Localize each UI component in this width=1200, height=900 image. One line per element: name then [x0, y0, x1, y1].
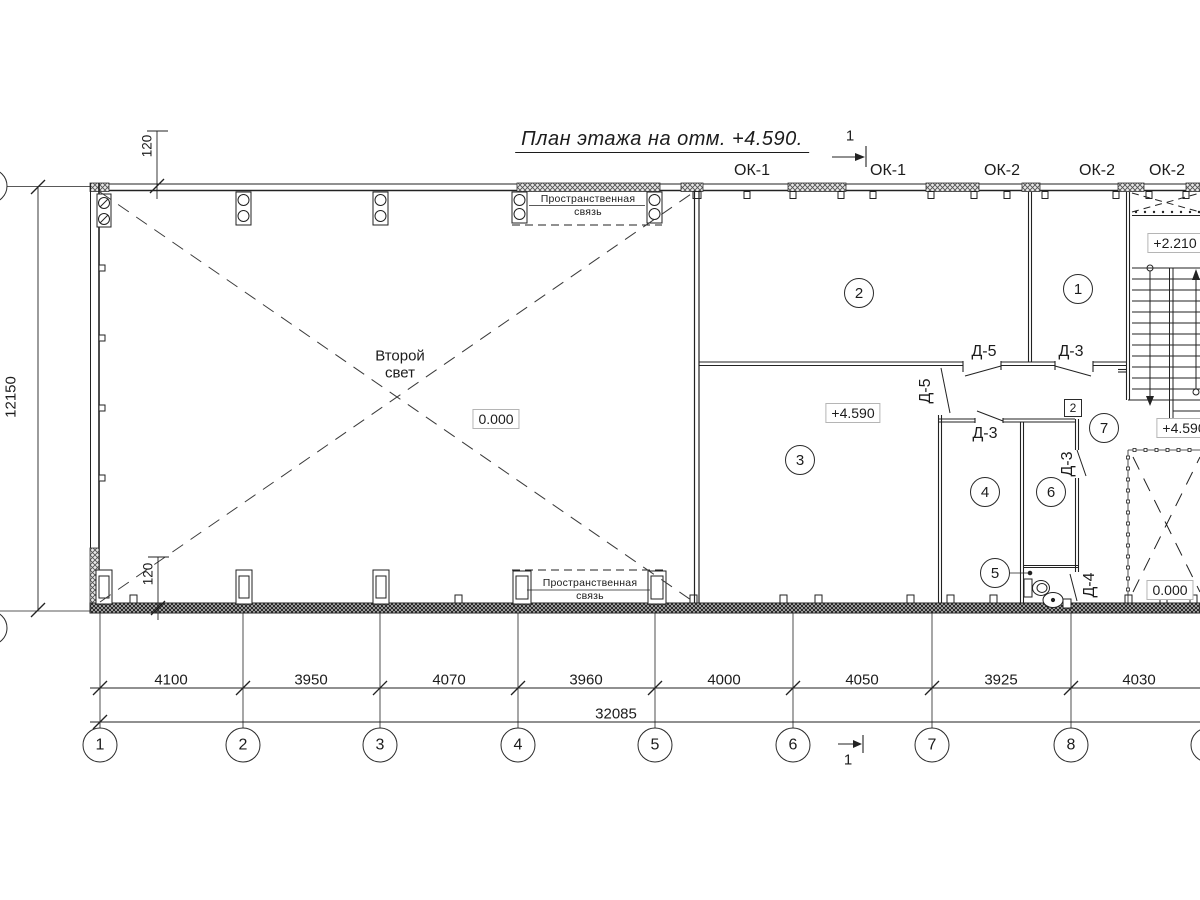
hall-cross-lines — [100, 192, 694, 602]
hall-label-line1: Второй — [373, 349, 427, 364]
section-label-top: 1 — [846, 129, 854, 144]
dim-offset-bottom: 120 — [141, 563, 155, 586]
room-circle-5: 5 — [980, 558, 1010, 588]
dim-segment-2: 3950 — [294, 673, 327, 688]
window-label-ok1-a: ОК-1 — [734, 163, 770, 179]
brace-label-top-line1: Пространственная — [541, 194, 635, 205]
columns — [96, 192, 666, 604]
section-label-bottom: 1 — [844, 753, 852, 768]
stair — [1128, 193, 1200, 422]
axis-circle-8: 8 — [1054, 728, 1089, 763]
dim-offset-top: 120 — [140, 135, 154, 158]
room-circle-3: 3 — [785, 445, 815, 475]
elevation-stair-bottom: +4.590 — [1156, 418, 1200, 438]
door-label-d3-top: Д-3 — [1058, 344, 1083, 360]
door-label-d5-vert: Д-5 — [918, 378, 934, 403]
hall-label-line2: свет — [383, 366, 417, 381]
room-circle-7: 7 — [1089, 413, 1119, 443]
room-circle-4: 4 — [970, 477, 1000, 507]
door-label-d4-vert: Д-4 — [1082, 572, 1098, 597]
door-label-d3-room4: Д-3 — [972, 426, 997, 442]
window-label-ok2-a: ОК-2 — [984, 163, 1020, 179]
brace-label-bottom-line1: Пространственная — [543, 578, 637, 589]
dim-segment-7: 3925 — [984, 673, 1017, 688]
axis-circle-3: 3 — [363, 728, 398, 763]
brace-label-bottom-line2: связь — [576, 591, 604, 602]
dim-segment-8: 4030 — [1122, 673, 1155, 688]
elevation-shaft: 0.000 — [1146, 580, 1193, 600]
dim-segment-1: 4100 — [154, 673, 187, 688]
dim-segment-5: 4000 — [707, 673, 740, 688]
unit-badge: 2 — [1064, 399, 1082, 417]
sanitary-fixtures — [1009, 571, 1063, 607]
dim-segment-4: 3960 — [569, 673, 602, 688]
floor-plan-drawing: План этажа на отм. +4.590. 1 1 ОК-1 ОК-1… — [0, 0, 1200, 900]
brace-label-top-line2: связь — [574, 207, 602, 218]
axis-circle-2: 2 — [226, 728, 261, 763]
axis-circle-7: 7 — [915, 728, 950, 763]
dim-total: 32085 — [595, 707, 637, 722]
elevation-room3: +4.590 — [825, 403, 880, 423]
dim-segment-6: 4050 — [845, 673, 878, 688]
elevation-stair-landing: +2.210 — [1147, 233, 1200, 253]
window-label-ok2-c: ОК-2 — [1149, 163, 1185, 179]
door-label-d3-vert: Д-3 — [1060, 451, 1076, 476]
section-marks — [832, 146, 866, 753]
walls — [90, 183, 1200, 613]
axis-circle-4: 4 — [501, 728, 536, 763]
brace-assemblies — [512, 206, 667, 591]
room-circle-6: 6 — [1036, 477, 1066, 507]
window-label-ok2-b: ОК-2 — [1079, 163, 1115, 179]
hall-elevation: 0.000 — [472, 409, 519, 429]
axis-circle-5: 5 — [638, 728, 673, 763]
dim-segment-3: 4070 — [432, 673, 465, 688]
room-circle-1: 1 — [1063, 274, 1093, 304]
axis-circle-1: 1 — [83, 728, 118, 763]
door-label-d5-top: Д-5 — [971, 344, 996, 360]
room-circle-2: 2 — [844, 278, 874, 308]
window-label-ok1-b: ОК-1 — [870, 163, 906, 179]
dim-height-left: 12150 — [4, 376, 19, 418]
axis-circle-6: 6 — [776, 728, 811, 763]
plan-title: План этажа на отм. +4.590. — [515, 129, 809, 153]
